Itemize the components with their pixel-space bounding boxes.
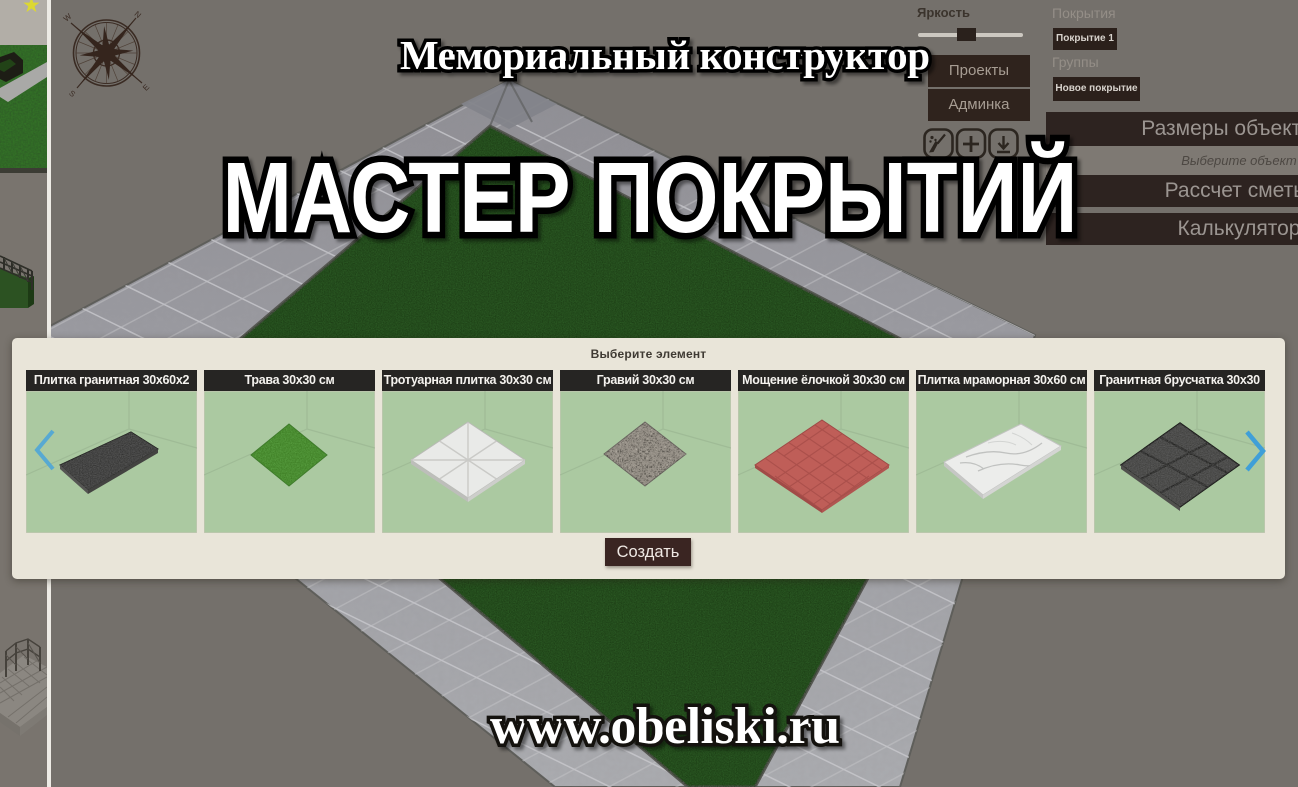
svg-text:S: S bbox=[67, 89, 77, 99]
svg-text:E: E bbox=[141, 83, 151, 93]
svg-text:Мемориальный конструктор: Мемориальный конструктор bbox=[400, 32, 930, 78]
svg-text:МАСТЕР ПОКРЫТИЙ: МАСТЕР ПОКРЫТИЙ bbox=[223, 141, 1078, 254]
svg-text:W: W bbox=[62, 11, 74, 23]
svg-text:www.obeliski.ru: www.obeliski.ru bbox=[490, 698, 840, 755]
svg-text:N: N bbox=[133, 9, 143, 20]
